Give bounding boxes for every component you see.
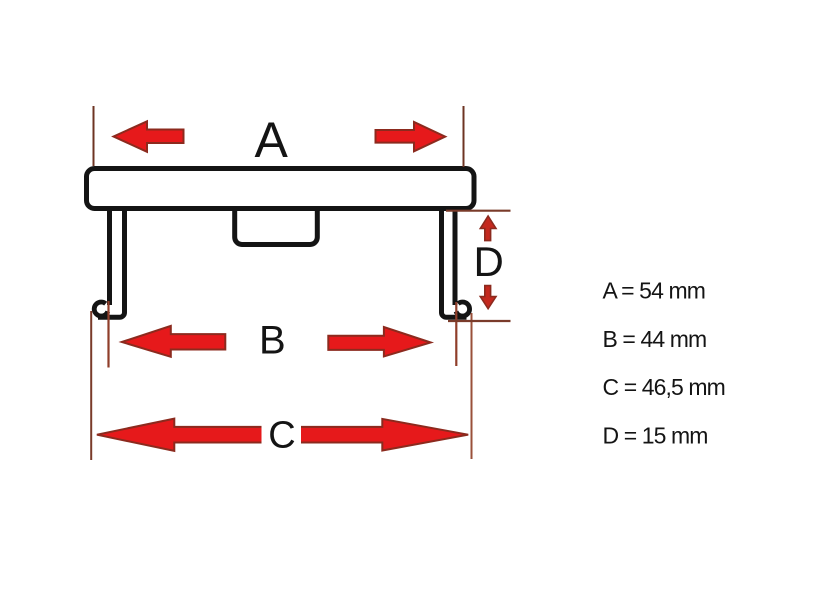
svg-text:A = 54 mm: A = 54 mm	[603, 278, 705, 304]
svg-text:A: A	[255, 112, 289, 168]
svg-text:D = 15 mm: D = 15 mm	[603, 422, 708, 448]
svg-text:B = 44 mm: B = 44 mm	[603, 326, 707, 352]
svg-text:C = 46,5 mm: C = 46,5 mm	[603, 374, 725, 400]
svg-text:D: D	[474, 238, 504, 285]
svg-text:B: B	[259, 319, 286, 363]
svg-text:C: C	[268, 414, 295, 456]
